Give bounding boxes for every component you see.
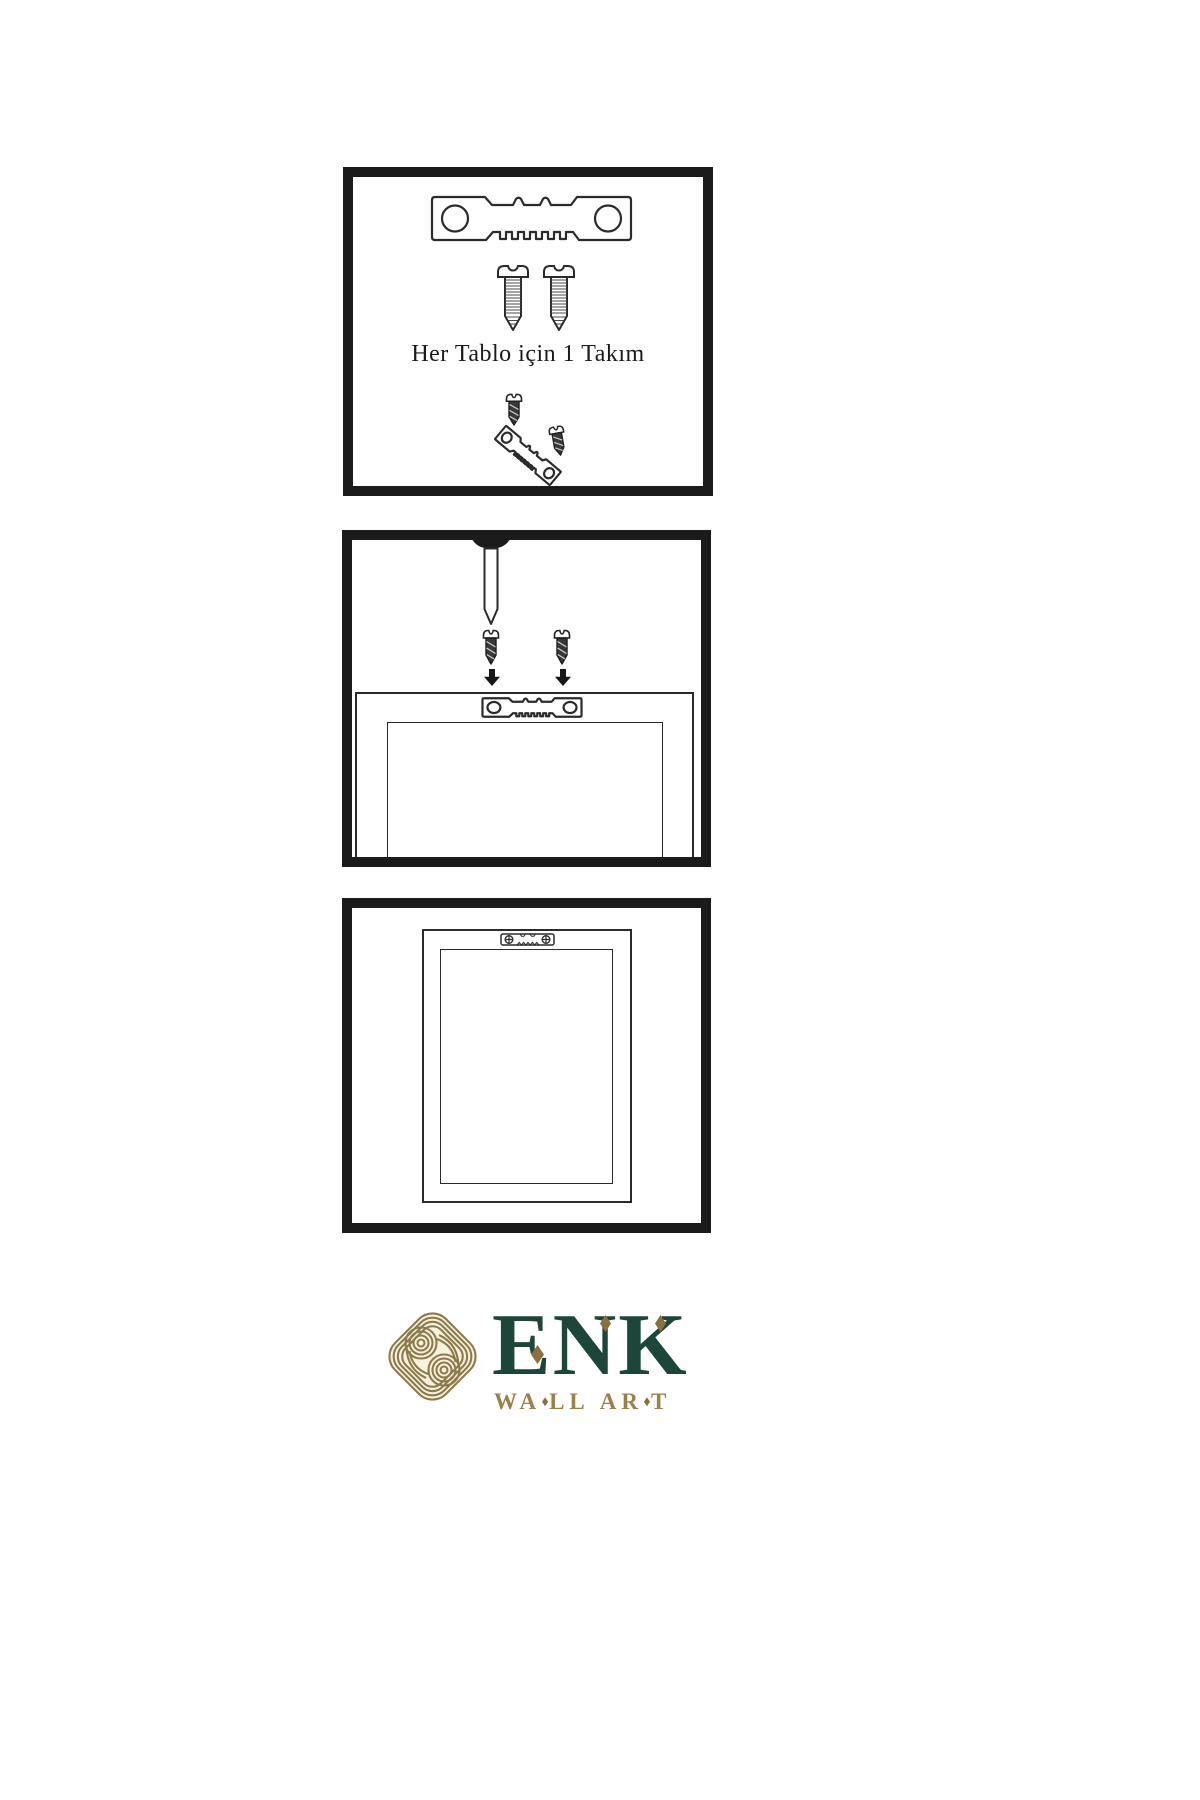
tagline-part: WA bbox=[494, 1389, 541, 1414]
step-3-hang-panel bbox=[342, 898, 711, 1233]
tagline-part: LL bbox=[549, 1389, 590, 1414]
down-arrow-icon bbox=[555, 669, 571, 686]
nail-icon bbox=[471, 537, 511, 627]
brand-letter-n: N bbox=[553, 1297, 619, 1394]
screw-icon bbox=[497, 264, 529, 332]
kit-caption: Her Tablo için 1 Takım bbox=[353, 341, 703, 368]
tiny-diamond-icon bbox=[542, 1397, 548, 1406]
brand-letter-k: K bbox=[618, 1297, 688, 1394]
down-arrow-icon bbox=[484, 669, 500, 686]
sawtooth-hanger-icon bbox=[429, 194, 634, 243]
brand-name: ENK bbox=[492, 1302, 689, 1390]
sawtooth-hanger-icon bbox=[481, 697, 583, 718]
screw-icon bbox=[547, 424, 569, 457]
brand-letter-e: E bbox=[492, 1297, 553, 1394]
sawtooth-hanger-mounted-icon bbox=[500, 933, 555, 946]
tagline-part: AR bbox=[600, 1389, 643, 1414]
brand-tagline: WALLART bbox=[494, 1389, 671, 1415]
framed-picture-inner bbox=[440, 949, 613, 1184]
screw-icon bbox=[482, 629, 500, 665]
instruction-sheet: Her Tablo için 1 Takım bbox=[0, 0, 1200, 1800]
step-1-kit-panel: Her Tablo için 1 Takım bbox=[343, 167, 713, 496]
screw-icon bbox=[553, 629, 571, 665]
step-2-mount-panel bbox=[342, 530, 711, 867]
knot-logo-icon bbox=[381, 1296, 484, 1417]
screw-icon bbox=[505, 393, 523, 426]
tagline-part: T bbox=[651, 1389, 671, 1414]
tiny-diamond-icon bbox=[644, 1397, 650, 1406]
frame-back-inner bbox=[387, 722, 663, 867]
screw-icon bbox=[543, 264, 575, 332]
